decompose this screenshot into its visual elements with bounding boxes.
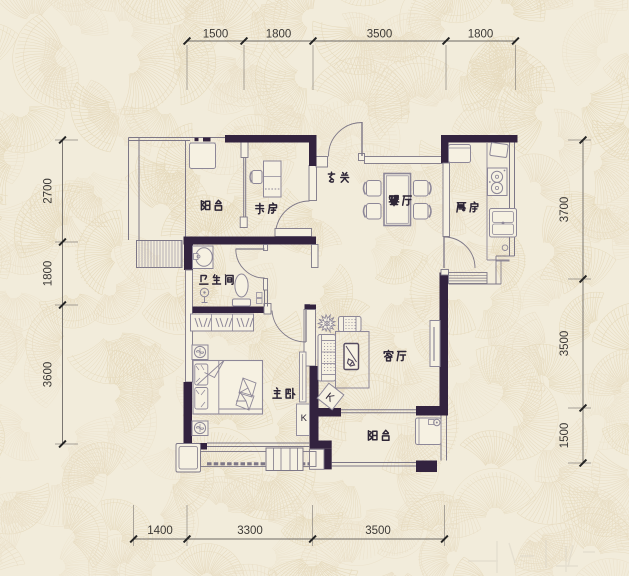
svg-text:1800: 1800 xyxy=(468,29,494,41)
svg-text:1500: 1500 xyxy=(203,29,229,41)
svg-text:1800: 1800 xyxy=(266,29,292,41)
svg-text:1800: 1800 xyxy=(43,261,55,287)
svg-text:3300: 3300 xyxy=(237,525,263,537)
svg-text:1500: 1500 xyxy=(559,423,571,449)
svg-text:3500: 3500 xyxy=(367,29,393,41)
svg-text:3500: 3500 xyxy=(559,331,571,357)
svg-text:2700: 2700 xyxy=(43,178,55,204)
svg-text:3700: 3700 xyxy=(559,197,571,223)
svg-text:3600: 3600 xyxy=(43,362,55,388)
svg-text:3500: 3500 xyxy=(365,525,391,537)
svg-text:K: K xyxy=(301,413,308,424)
svg-text:1400: 1400 xyxy=(147,525,173,537)
